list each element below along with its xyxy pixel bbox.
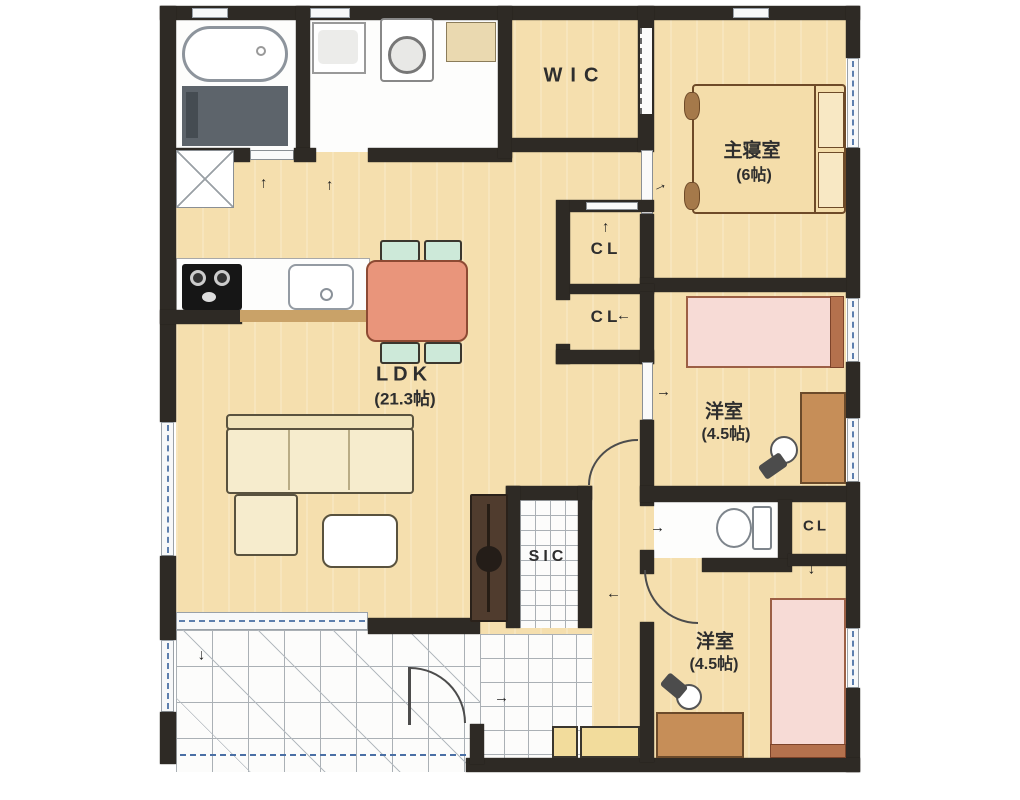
bed-edge-line (814, 86, 816, 212)
stove-grill (202, 292, 216, 302)
entry-step-box (552, 726, 578, 758)
window (733, 8, 769, 18)
sink-faucet (320, 288, 333, 301)
bed-frame-strip (770, 744, 846, 758)
bedroom1-sliding-door (642, 362, 653, 420)
wall (778, 500, 792, 558)
window (310, 8, 350, 18)
tv-screen (476, 546, 502, 572)
front-door-leaf (408, 667, 411, 725)
wall (846, 148, 860, 298)
pillow (684, 92, 700, 120)
wall (470, 724, 484, 764)
wic-label: WIC (544, 65, 607, 88)
wall (160, 6, 176, 422)
sofa-chaise (234, 494, 298, 556)
counter-front (240, 310, 368, 322)
closet1-door (586, 202, 638, 210)
sofa-cushion-divider (288, 430, 290, 490)
bed-headboard-shelf (818, 92, 844, 148)
bedroom1-door-arrow: → (656, 384, 671, 399)
ldk-name: LDK (376, 364, 432, 387)
sofa-seats (226, 428, 414, 494)
ldk-terrace-window (176, 612, 368, 630)
wall (160, 556, 176, 640)
wall (556, 200, 570, 300)
toilet-bowl (716, 508, 752, 548)
wall (640, 486, 846, 502)
bedroom1-size: (4.5帖) (702, 420, 751, 444)
window (192, 8, 228, 18)
terrace-door-arrow: → (196, 648, 211, 663)
shower-fixture (186, 92, 198, 138)
vanity-basin (318, 30, 358, 64)
closet1-label: CL (591, 239, 622, 259)
wall (160, 712, 176, 764)
desk-bottom-room (656, 712, 744, 758)
bed-headboard-shelf (818, 152, 844, 208)
sic-label: SIC (529, 548, 568, 566)
window (847, 58, 859, 148)
wall (294, 148, 316, 162)
dining-chair (380, 342, 420, 364)
wall (578, 486, 592, 628)
window (847, 298, 859, 362)
closet1-door-arrow: → (596, 220, 611, 235)
genkan-arrow: → (494, 690, 509, 705)
dining-chair (380, 240, 420, 262)
bed-frame-strip (830, 296, 844, 368)
bedroom2-size: (4.5帖) (690, 650, 739, 674)
wall (846, 482, 860, 628)
wall (846, 362, 860, 418)
dining-table (366, 260, 468, 342)
wall (640, 278, 846, 292)
bathtub-drain (256, 46, 266, 56)
window (847, 418, 859, 482)
wall (640, 622, 654, 762)
entry-step-box (580, 726, 640, 758)
wall (498, 6, 512, 158)
bathtub (182, 26, 288, 82)
master-bedroom-size: (6帖) (736, 161, 772, 185)
wall (368, 148, 512, 162)
sofa-cushion-divider (348, 430, 350, 490)
closet2-label: CL (591, 307, 622, 327)
ldk-size: (21.3帖) (374, 385, 435, 410)
floor-hatch (176, 150, 234, 208)
linen-shelf (446, 22, 496, 62)
window (847, 628, 859, 688)
dining-chair (424, 240, 462, 262)
stove-burner (190, 270, 206, 286)
stove (182, 264, 242, 310)
dining-chair (424, 342, 462, 364)
pillow (684, 182, 700, 210)
bath-door-arrow: → (254, 176, 269, 191)
bed-middle-room (686, 296, 844, 368)
wall (368, 618, 480, 634)
closet3-door-arrow: → (806, 562, 821, 577)
wall (160, 310, 242, 324)
wall (640, 292, 654, 364)
master-bedroom-name: 主寝室 (723, 136, 780, 163)
wall (296, 6, 310, 154)
wall (506, 486, 520, 628)
porch-edge-line (180, 754, 466, 756)
bathroom-sliding-door (250, 150, 294, 160)
toilet-tank (752, 506, 772, 550)
window (161, 422, 174, 556)
kitchen-sink (288, 264, 354, 310)
window (161, 640, 174, 712)
wall (512, 138, 642, 152)
wall (466, 758, 860, 772)
bed-bottom-room (770, 598, 846, 746)
wic-opening (640, 28, 652, 114)
floorplan-canvas: → → → → → → → → → → → WIC 主寝室 (6帖) CL CL… (0, 0, 1020, 800)
coffee-table (322, 514, 398, 568)
washroom-door-arrow: → (320, 178, 335, 193)
wall (846, 6, 860, 58)
toilet-door-arrow: → (650, 520, 665, 535)
wall (702, 558, 792, 572)
stove-burner (214, 270, 230, 286)
bedroom2-door-arrow: → (606, 590, 621, 605)
desk-middle-room (800, 392, 846, 484)
closet3-label: CL (803, 518, 829, 535)
washing-machine-drum (388, 36, 426, 74)
